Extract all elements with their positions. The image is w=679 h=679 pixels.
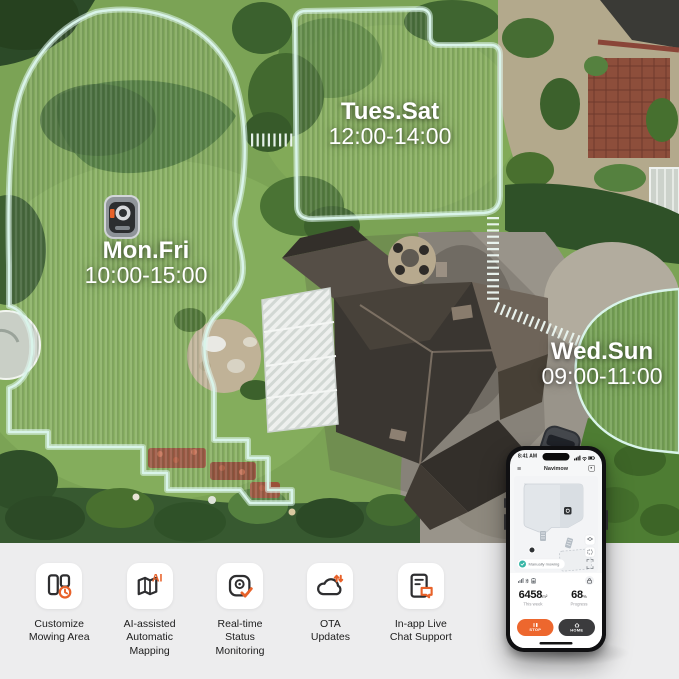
stats-row: 6458m² This week 68% Progress bbox=[510, 588, 602, 607]
map-boundary-button[interactable] bbox=[585, 547, 595, 557]
area-value: 6458 bbox=[519, 588, 542, 601]
home-indicator bbox=[540, 642, 573, 645]
svg-text:AI: AI bbox=[151, 573, 162, 585]
feature-label: AI-assisted Automatic Mapping bbox=[124, 618, 176, 658]
map-robot-marker[interactable] bbox=[564, 507, 572, 515]
marketing-image: Mon.Fri 10:00-15:00 Tues.Sat 12:00-14:00… bbox=[0, 0, 679, 679]
ota-updates-icon bbox=[315, 571, 345, 601]
feature-ai-mapping: AI AI-assisted Automatic Mapping bbox=[104, 563, 194, 658]
map-edit-icon[interactable] bbox=[589, 465, 596, 472]
map-position-marker bbox=[529, 547, 535, 553]
app-stats-panel: 6458m² This week 68% Progress STOP bbox=[510, 573, 602, 648]
area-label: This week bbox=[510, 602, 556, 607]
phone-mockup: 8:41 AM bbox=[506, 446, 606, 652]
status-time: 8:41 AM bbox=[518, 454, 537, 460]
feature-chat-support: In-app Live Chat Support bbox=[376, 563, 466, 658]
lock-button[interactable] bbox=[585, 576, 594, 585]
robot-mower bbox=[105, 196, 139, 238]
app-nav-bar: ≡ Navimow bbox=[510, 463, 602, 475]
phone-screen: 8:41 AM bbox=[510, 450, 602, 648]
power-button bbox=[606, 510, 608, 530]
area-stat: 6458m² This week bbox=[510, 588, 556, 607]
control-buttons: STOP HOME bbox=[517, 619, 595, 636]
status-pill-text: Manually mowing bbox=[529, 562, 560, 567]
feature-label: OTA Updates bbox=[311, 618, 350, 645]
ai-mapping-icon: AI bbox=[135, 571, 165, 601]
connectivity-icons bbox=[518, 577, 538, 586]
terrace bbox=[388, 236, 436, 284]
feature-list: Customize Mowing Area AI AI-assisted Aut… bbox=[14, 563, 466, 658]
app-map[interactable]: Manually mowing bbox=[514, 476, 598, 572]
stop-button[interactable]: STOP bbox=[517, 619, 554, 636]
progress-stat: 68% Progress bbox=[556, 588, 602, 607]
feature-customize-area: Customize Mowing Area bbox=[14, 563, 104, 658]
progress-unit: % bbox=[583, 594, 587, 599]
feature-status-monitoring: Real-time Status Monitoring bbox=[195, 563, 285, 658]
area-unit: m² bbox=[542, 594, 547, 599]
status-monitoring-icon bbox=[225, 571, 255, 601]
progress-label: Progress bbox=[556, 602, 602, 607]
status-pill: Manually mowing bbox=[517, 559, 565, 569]
feature-label: Customize Mowing Area bbox=[29, 618, 90, 645]
feature-ota-updates: OTA Updates bbox=[285, 563, 375, 658]
feature-label: In-app Live Chat Support bbox=[390, 618, 452, 645]
phone-notch bbox=[543, 453, 570, 461]
map-zone-shading bbox=[560, 484, 583, 528]
customize-area-icon bbox=[44, 571, 74, 601]
home-button[interactable]: HOME bbox=[559, 619, 596, 636]
chat-support-icon bbox=[406, 571, 436, 601]
pergola bbox=[262, 288, 338, 432]
progress-value: 68 bbox=[571, 588, 583, 601]
home-icon bbox=[574, 623, 579, 628]
feature-label: Real-time Status Monitoring bbox=[216, 618, 265, 658]
map-layer-button[interactable] bbox=[585, 535, 595, 545]
pause-icon bbox=[533, 623, 537, 627]
